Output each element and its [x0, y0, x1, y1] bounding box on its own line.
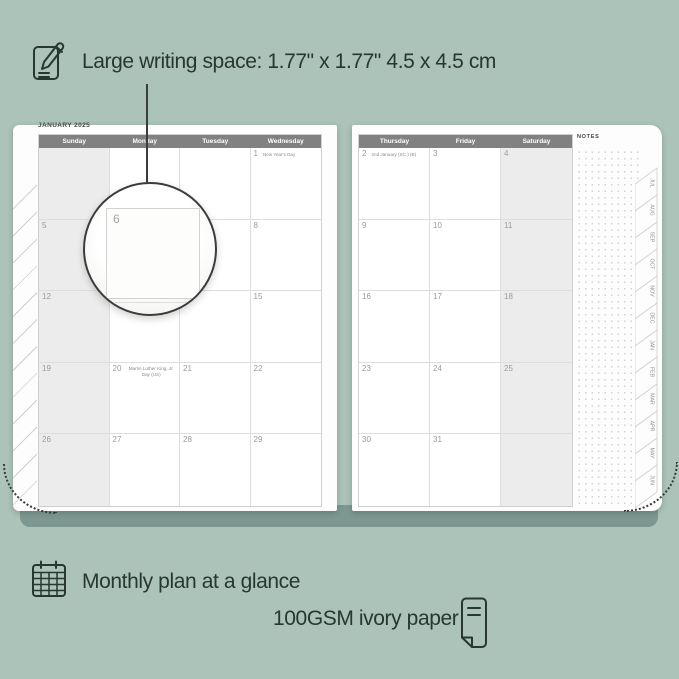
product-image-canvas: Large writing space: 1.77" x 1.77" 4.5 x… [0, 0, 679, 679]
calendar-cell: 25 [501, 363, 572, 435]
day-number: 28 [183, 436, 192, 445]
calendar-cell: 16 [359, 291, 430, 363]
notes-label: NOTES [577, 134, 599, 140]
paper-icon [459, 597, 489, 649]
day-number: 9 [362, 222, 366, 231]
calendar-cell: 11 [501, 220, 572, 292]
day-number: 27 [113, 436, 122, 445]
calendar-cell: 31 [430, 434, 501, 506]
holiday-label: New Year's Day [263, 152, 295, 158]
month-tab-label: FEB [649, 367, 655, 378]
day-number: 29 [254, 436, 263, 445]
month-tab-label: MAY [649, 448, 655, 459]
day-number: 23 [362, 365, 371, 374]
calendar-cell: 23 [359, 363, 430, 435]
day-number: 1 [254, 150, 258, 159]
day-number: 31 [433, 436, 442, 445]
day-number: 30 [362, 436, 371, 445]
day-number: 26 [42, 436, 51, 445]
calendar-cell: 15 [251, 291, 322, 363]
magnifier-circle: 6 [83, 182, 217, 316]
corner-curl-mark-right [624, 462, 678, 512]
month-tab-label: APR [649, 421, 655, 432]
calendar-cell: 30 [359, 434, 430, 506]
month-tab-label: JAN [649, 340, 655, 350]
next-row-box-edge [115, 302, 191, 303]
calendar-cell: 3 [430, 148, 501, 220]
day-header: Wednesday [251, 135, 322, 148]
calendar-cell: 19 [39, 363, 110, 435]
day-header: Saturday [501, 135, 572, 148]
day-number: 2 [362, 150, 366, 159]
day-header: Tuesday [180, 135, 251, 148]
day-header: Monday [110, 135, 181, 148]
planner-left-page: JANUARY 2025 SundayMondayTuesdayWednesda… [13, 125, 337, 511]
planner-right-page: ThursdayFridaySaturday22nd January (SC.)… [352, 125, 662, 511]
calendar-icon [31, 560, 68, 599]
month-tab-label: DEC [649, 313, 655, 324]
month-tab-label: AUG [649, 204, 655, 215]
month-tab-label: JUL [649, 178, 655, 187]
month-tab-label: NOV [649, 285, 655, 297]
notes-dot-grid [576, 149, 642, 505]
bottom-right-caption: 100GSM ivory paper [273, 607, 458, 631]
day-number: 11 [504, 222, 512, 231]
calendar-cell: 22nd January (SC.) (B) [359, 148, 430, 220]
day-number: 5 [42, 222, 46, 231]
day-number: 3 [433, 150, 437, 159]
day-number: 21 [183, 365, 192, 374]
calendar-cell: 10 [430, 220, 501, 292]
magnified-day-number: 6 [113, 212, 120, 226]
bottom-left-caption: Monthly plan at a glance [82, 570, 300, 594]
day-number: 4 [504, 150, 508, 159]
calendar-cell [501, 434, 572, 506]
holiday-label: 2nd January (SC.) (B) [371, 152, 416, 158]
month-tab-label: OCT [649, 259, 655, 271]
calendar-cell: 29 [251, 434, 322, 506]
month-tab-label: SEP [649, 232, 655, 243]
calendar-cell: 9 [359, 220, 430, 292]
day-number: 16 [362, 293, 371, 302]
calendar-cell: 21 [180, 363, 251, 435]
day-header: Thursday [359, 135, 430, 148]
writing-space-box: 6 [106, 208, 200, 299]
corner-curl-mark-left [3, 464, 57, 514]
calendar-cell: 27 [110, 434, 181, 506]
day-header: Friday [430, 135, 501, 148]
pencil-note-icon [32, 36, 66, 84]
calendar-cell: 12 [39, 291, 110, 363]
holiday-label: Martin Luther King, Jr. Day (US) [126, 366, 176, 378]
callout-connector-line [146, 84, 148, 184]
calendar-cell: 1New Year's Day [251, 148, 322, 220]
day-number: 20 [113, 365, 122, 374]
day-number: 10 [433, 222, 442, 231]
calendar-grid-right: ThursdayFridaySaturday22nd January (SC.)… [358, 134, 573, 507]
calendar-cell: 17 [430, 291, 501, 363]
day-number: 25 [504, 365, 513, 374]
day-number: 12 [42, 293, 51, 302]
day-number: 24 [433, 365, 442, 374]
calendar-cell: 4 [501, 148, 572, 220]
calendar-cell: 24 [430, 363, 501, 435]
day-number: 19 [42, 365, 51, 374]
calendar-cell: 18 [501, 291, 572, 363]
calendar-cell: 22 [251, 363, 322, 435]
top-caption: Large writing space: 1.77" x 1.77" 4.5 x… [82, 50, 496, 74]
left-tab-edge-strip [13, 183, 37, 508]
month-tab-label: MAR [649, 393, 655, 405]
day-number: 22 [254, 365, 263, 374]
day-number: 15 [254, 293, 263, 302]
day-number: 8 [254, 222, 258, 231]
calendar-cell: 8 [251, 220, 322, 292]
calendar-cell: 28 [180, 434, 251, 506]
day-header: Sunday [39, 135, 110, 148]
calendar-cell: 20Martin Luther King, Jr. Day (US) [110, 363, 181, 435]
day-number: 18 [504, 293, 513, 302]
month-title: JANUARY 2025 [38, 122, 90, 129]
day-number: 17 [433, 293, 442, 302]
